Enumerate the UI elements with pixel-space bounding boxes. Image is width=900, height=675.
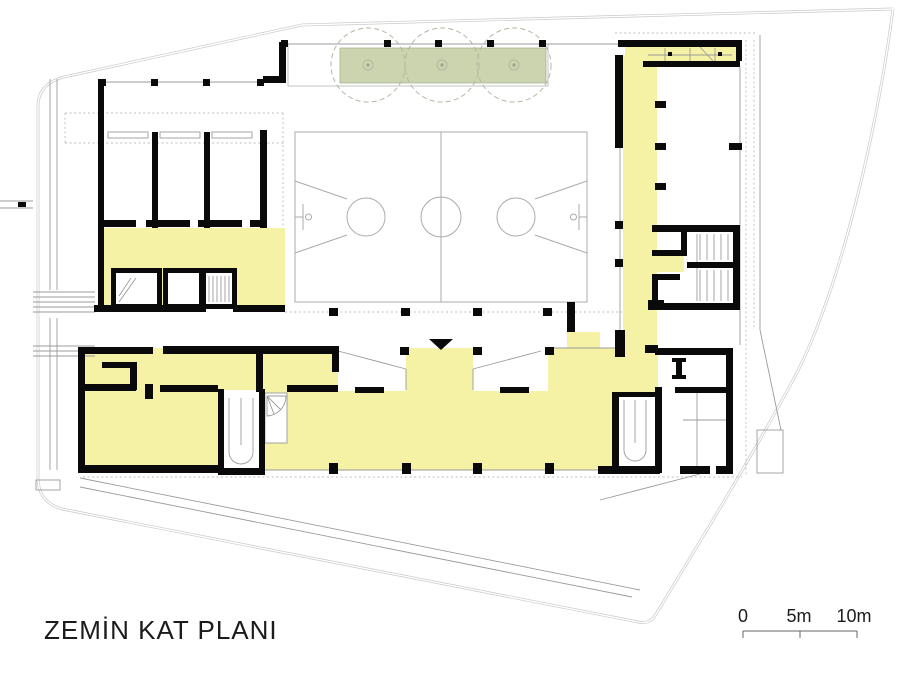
floor-plan-canvas: ZEMİN KAT PLANI 0 5m 10m	[0, 0, 900, 675]
plan-title: ZEMİN KAT PLANI	[44, 615, 278, 645]
detail-lines	[0, 35, 783, 597]
basket-icon	[571, 204, 588, 230]
boundary-tick	[18, 202, 26, 207]
column-row-court-south	[329, 308, 552, 316]
planter	[288, 28, 551, 102]
floor-plan-drawing: ZEMİN KAT PLANI 0 5m 10m	[0, 0, 900, 675]
scale-bar: 0 5m 10m	[738, 606, 872, 638]
scale-label-5m: 5m	[786, 606, 811, 626]
basket-icon	[295, 204, 312, 230]
basketball-court	[295, 132, 587, 302]
exterior-stair	[33, 292, 95, 312]
i-column-icon	[672, 358, 686, 379]
site-boundary	[38, 9, 893, 623]
stair-landing	[640, 255, 684, 272]
column-row-top	[99, 79, 264, 86]
vestibule-left	[338, 348, 406, 391]
vestibule-right	[473, 348, 548, 391]
scale-label-0: 0	[738, 606, 748, 626]
scale-label-10m: 10m	[836, 606, 871, 626]
